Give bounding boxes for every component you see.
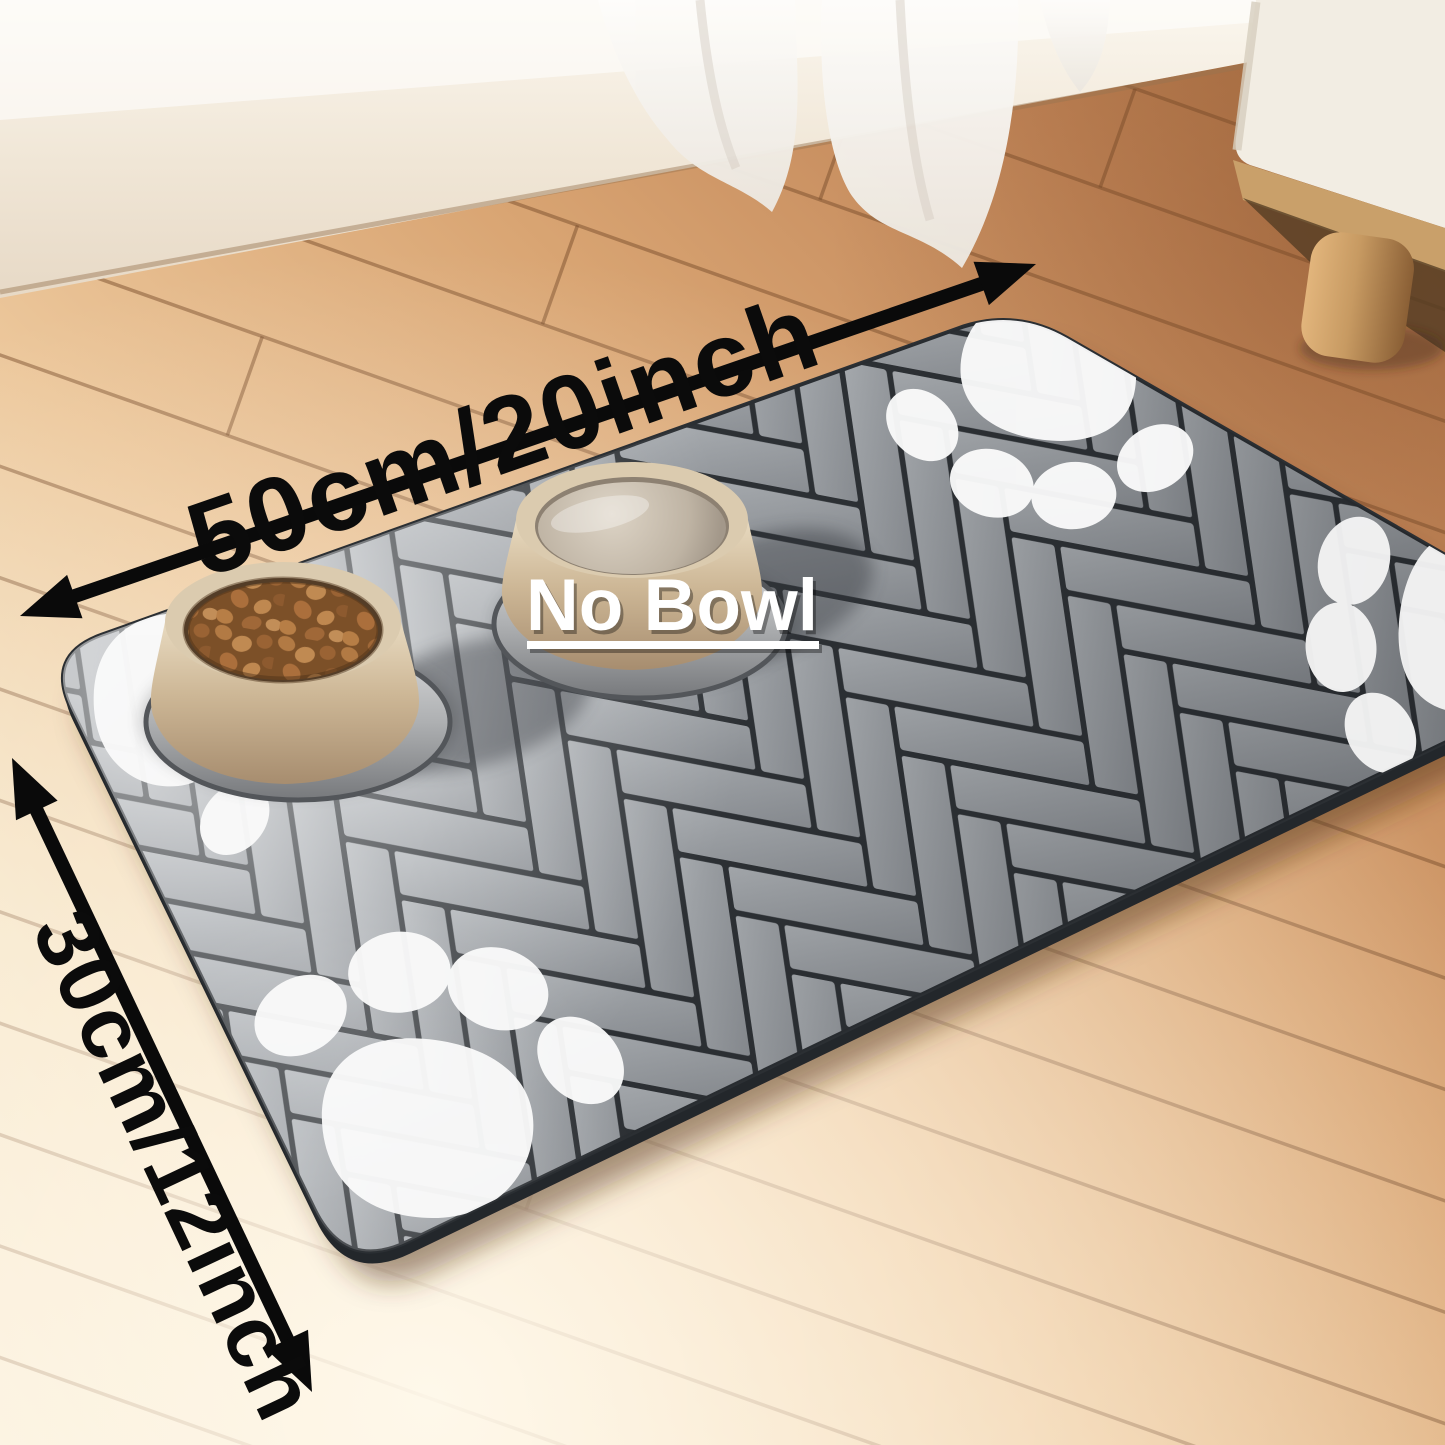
no-bowl-label: No Bowl [526,565,818,646]
no-bowl-annotation: No Bowl No Bowl [526,565,822,653]
no-bowl-underline [527,641,819,649]
product-photo: 50cm/20inch 30cm/12inch No Bowl No Bowl [0,0,1445,1445]
cabinet-leg [1297,228,1417,366]
pet-feeding-mat-scene: 50cm/20inch 30cm/12inch No Bowl No Bowl [0,0,1445,1445]
